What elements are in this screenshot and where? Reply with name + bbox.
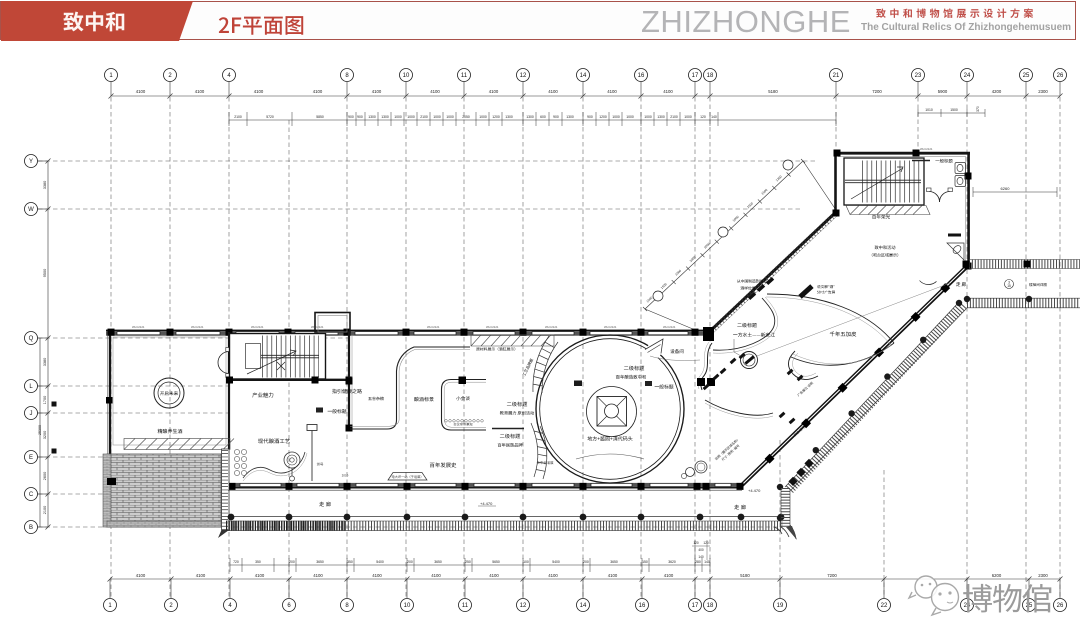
- svg-text:1000: 1000: [684, 115, 692, 119]
- svg-text:1000: 1000: [626, 115, 634, 119]
- svg-text:2100: 2100: [670, 115, 678, 119]
- svg-text:5180: 5180: [768, 89, 778, 94]
- svg-text:1300: 1300: [657, 115, 665, 119]
- svg-text:120: 120: [700, 115, 706, 119]
- svg-text:4100: 4100: [548, 89, 558, 94]
- svg-text:Q: Q: [29, 336, 34, 342]
- svg-text:4100: 4100: [313, 89, 323, 94]
- svg-text:400: 400: [698, 548, 704, 552]
- svg-text:5180: 5180: [740, 573, 750, 578]
- svg-text:25300: 25300: [38, 425, 42, 435]
- svg-text:10: 10: [403, 73, 410, 79]
- svg-text:1000: 1000: [612, 115, 620, 119]
- svg-text:4100: 4100: [430, 89, 440, 94]
- svg-text:2100: 2100: [43, 506, 47, 514]
- svg-text:WLC2121: WLC2121: [486, 325, 499, 329]
- svg-text:WLC2121: WLC2121: [604, 325, 617, 329]
- svg-text:4200: 4200: [992, 89, 1002, 94]
- svg-text:5720: 5720: [266, 115, 274, 119]
- svg-text:1300: 1300: [381, 115, 389, 119]
- svg-text:4100: 4100: [431, 573, 441, 578]
- svg-text:16: 16: [639, 603, 646, 609]
- svg-text:900: 900: [587, 115, 593, 119]
- svg-text:W: W: [28, 207, 34, 213]
- svg-text:5850: 5850: [316, 115, 324, 119]
- svg-text:24: 24: [964, 73, 971, 79]
- svg-text:1000: 1000: [394, 115, 402, 119]
- svg-text:2100: 2100: [420, 115, 428, 119]
- svg-text:WLC2121: WLC2121: [251, 325, 264, 329]
- svg-text:10: 10: [404, 603, 411, 609]
- svg-text:1000: 1000: [446, 115, 454, 119]
- svg-text:3650: 3650: [610, 560, 618, 564]
- svg-text:370: 370: [976, 106, 980, 112]
- svg-text:120: 120: [703, 541, 709, 545]
- svg-text:11: 11: [462, 603, 469, 609]
- svg-text:12: 12: [520, 603, 527, 609]
- svg-text:4100: 4100: [663, 89, 673, 94]
- svg-text:4100: 4100: [548, 573, 558, 578]
- svg-text:4100: 4100: [489, 89, 499, 94]
- svg-text:4100: 4100: [664, 573, 674, 578]
- svg-text:7200: 7200: [872, 89, 882, 94]
- svg-text:4100: 4100: [372, 89, 382, 94]
- svg-text:E: E: [29, 455, 33, 461]
- svg-text:1200: 1200: [492, 115, 500, 119]
- svg-text:25: 25: [1026, 603, 1033, 609]
- svg-text:9500: 9500: [43, 269, 47, 277]
- svg-text:4100: 4100: [254, 89, 264, 94]
- svg-text:2300: 2300: [1038, 573, 1048, 578]
- svg-text:140: 140: [698, 555, 704, 559]
- svg-text:4100: 4100: [608, 573, 618, 578]
- svg-text:4100: 4100: [372, 573, 382, 578]
- svg-text:12: 12: [520, 73, 527, 79]
- svg-text:280: 280: [695, 560, 701, 564]
- svg-text:200: 200: [583, 560, 589, 564]
- svg-text:17: 17: [692, 73, 699, 79]
- svg-text:16: 16: [638, 73, 645, 79]
- svg-text:900: 900: [357, 115, 363, 119]
- svg-text:140: 140: [711, 115, 717, 119]
- svg-text:25: 25: [1023, 73, 1030, 79]
- svg-text:3380: 3380: [43, 181, 47, 189]
- svg-text:4100: 4100: [136, 573, 146, 578]
- svg-text:1010: 1010: [925, 108, 933, 112]
- svg-text:4100: 4100: [196, 573, 206, 578]
- svg-text:18: 18: [707, 73, 714, 79]
- svg-text:350: 350: [347, 560, 353, 564]
- svg-text:200: 200: [289, 560, 295, 564]
- svg-text:4100: 4100: [255, 573, 265, 578]
- svg-text:4100: 4100: [313, 573, 323, 578]
- svg-text:1300: 1300: [505, 115, 513, 119]
- svg-text:WLC2121: WLC2121: [663, 325, 676, 329]
- svg-text:6200: 6200: [992, 573, 1002, 578]
- svg-text:17: 17: [692, 603, 699, 609]
- svg-text:140: 140: [704, 560, 710, 564]
- svg-text:120: 120: [693, 541, 699, 545]
- svg-text:3380: 3380: [43, 358, 47, 366]
- svg-text:1000: 1000: [644, 115, 652, 119]
- svg-text:B: B: [29, 525, 33, 531]
- svg-text:200: 200: [407, 560, 413, 564]
- svg-text:4100: 4100: [195, 89, 205, 94]
- svg-text:21: 21: [833, 73, 840, 79]
- svg-text:26: 26: [1057, 73, 1064, 79]
- svg-text:11: 11: [461, 73, 468, 79]
- svg-text:720: 720: [233, 560, 239, 564]
- svg-text:1000: 1000: [407, 115, 415, 119]
- svg-text:350: 350: [255, 560, 261, 564]
- svg-text:4100: 4100: [607, 89, 617, 94]
- svg-text:150: 150: [642, 560, 648, 564]
- svg-text:5650: 5650: [492, 560, 500, 564]
- svg-text:1700: 1700: [43, 396, 47, 404]
- svg-text:WLC2121: WLC2121: [920, 147, 933, 151]
- svg-text:18: 18: [707, 603, 714, 609]
- svg-text:WLC2121: WLC2121: [132, 325, 145, 329]
- svg-text:100: 100: [523, 560, 529, 564]
- svg-text:5400: 5400: [376, 560, 384, 564]
- svg-text:1000: 1000: [479, 115, 487, 119]
- svg-text:1300: 1300: [566, 115, 574, 119]
- svg-text:14: 14: [580, 603, 587, 609]
- svg-text:WLC2121: WLC2121: [311, 325, 324, 329]
- svg-text:6260: 6260: [1001, 186, 1011, 191]
- svg-text:23: 23: [915, 73, 922, 79]
- svg-text:4100: 4100: [489, 573, 499, 578]
- svg-text:2300: 2300: [1038, 89, 1048, 94]
- svg-text:WLC2121: WLC2121: [545, 325, 558, 329]
- svg-text:14: 14: [580, 73, 587, 79]
- svg-text:Y: Y: [29, 159, 33, 165]
- svg-text:3620: 3620: [668, 560, 676, 564]
- svg-text:2050: 2050: [462, 115, 470, 119]
- svg-text:4100: 4100: [136, 89, 146, 94]
- svg-text:1200: 1200: [599, 115, 607, 119]
- svg-text:3650: 3650: [434, 560, 442, 564]
- svg-text:600: 600: [540, 115, 546, 119]
- svg-text:900: 900: [553, 115, 559, 119]
- svg-text:5400: 5400: [552, 560, 560, 564]
- svg-text:1500: 1500: [950, 108, 958, 112]
- svg-text:250: 250: [465, 560, 471, 564]
- svg-text:1300: 1300: [368, 115, 376, 119]
- svg-text:26: 26: [1057, 603, 1064, 609]
- svg-text:C: C: [29, 492, 34, 498]
- svg-text:3650: 3650: [316, 560, 324, 564]
- svg-text:2100: 2100: [234, 115, 242, 119]
- svg-text:15: 15: [1007, 284, 1011, 288]
- svg-text:7200: 7200: [827, 573, 837, 578]
- svg-text:J: J: [30, 411, 33, 417]
- svg-text:3200: 3200: [43, 431, 47, 439]
- svg-text:900: 900: [348, 115, 354, 119]
- svg-text:2600: 2600: [43, 472, 47, 480]
- svg-text:19: 19: [777, 603, 784, 609]
- svg-text:WLC2121: WLC2121: [427, 325, 440, 329]
- svg-text:1300: 1300: [526, 115, 534, 119]
- svg-text:WLC2121: WLC2121: [191, 325, 204, 329]
- svg-text:+4.470: +4.470: [480, 501, 493, 506]
- svg-text:5900: 5900: [938, 89, 948, 94]
- svg-text:+4.470: +4.470: [748, 488, 761, 493]
- svg-text:1000: 1000: [433, 115, 441, 119]
- svg-text:22: 22: [881, 603, 888, 609]
